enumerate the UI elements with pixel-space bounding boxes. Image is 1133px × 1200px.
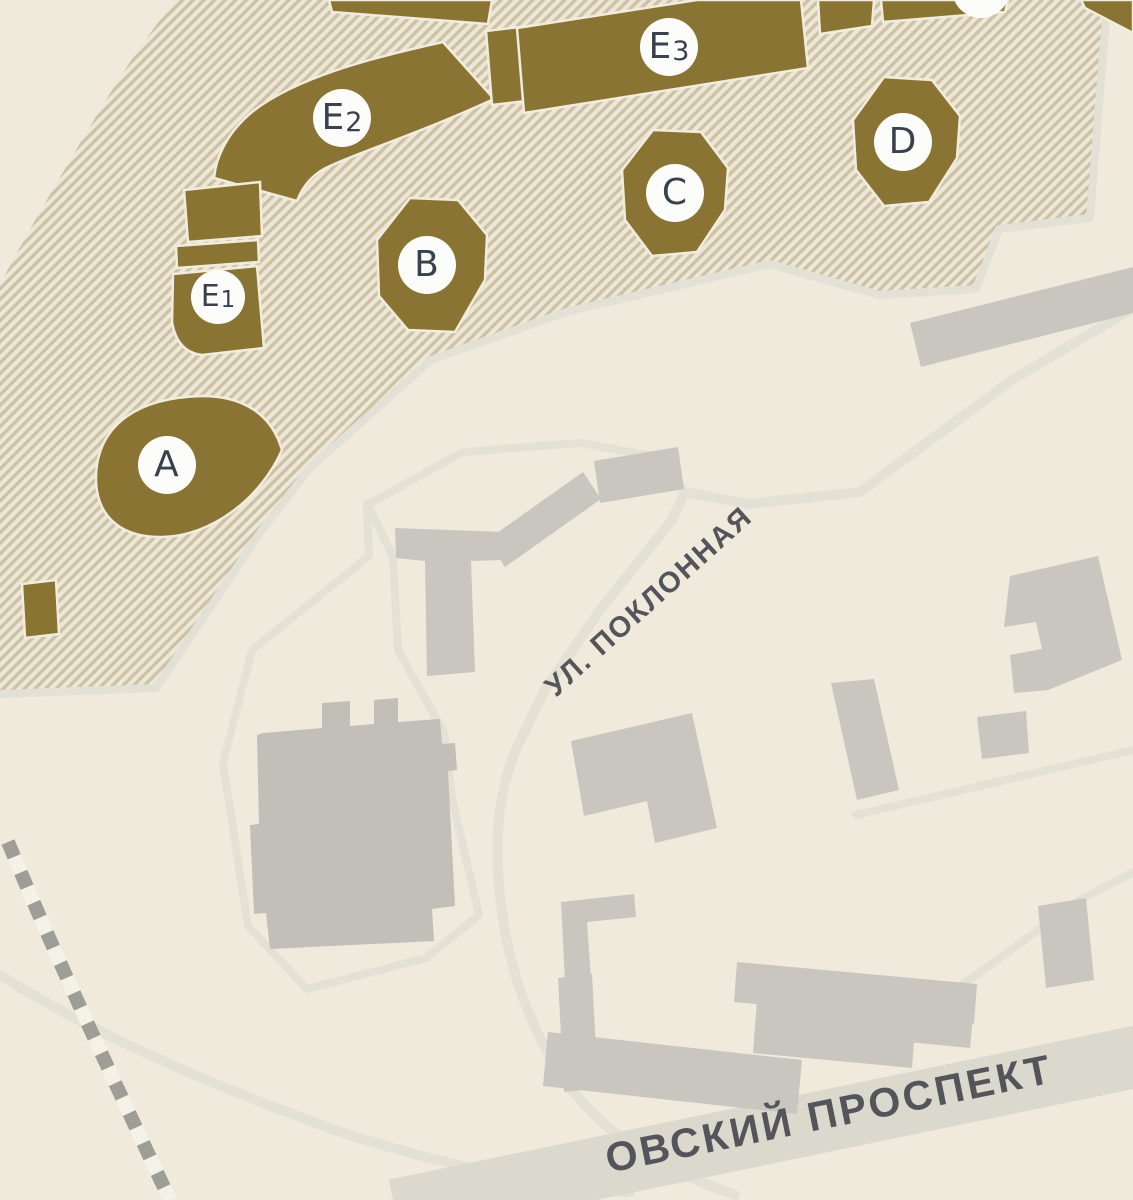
building-marker-e2-label: E <box>322 100 345 136</box>
map-canvas <box>0 0 1133 1200</box>
building-e1-upper <box>184 182 262 242</box>
building-marker-d[interactable]: D <box>874 113 932 171</box>
building-marker-e3-sub: 3 <box>672 30 689 65</box>
building-marker-e1-label: E <box>201 282 220 312</box>
building-marker-e2[interactable]: E2 <box>313 89 371 147</box>
context-building-south-block <box>908 988 975 1048</box>
building-marker-c-label: C <box>662 175 687 211</box>
building-marker-d-label: D <box>889 124 917 160</box>
context-building-east-small <box>977 711 1029 759</box>
building-marker-a-label: A <box>154 447 179 483</box>
building-e1-mid <box>176 240 259 268</box>
building-marker-b[interactable]: B <box>398 236 456 294</box>
context-building-southeast-bar <box>1038 898 1094 988</box>
building-marker-e1[interactable]: E1 <box>191 270 245 324</box>
building-small-rect <box>22 580 59 638</box>
building-marker-b-label: B <box>414 247 439 283</box>
building-marker-c[interactable]: C <box>646 164 704 222</box>
building-marker-e3[interactable]: E3 <box>640 18 698 76</box>
building-marker-e2-sub: 2 <box>345 101 362 136</box>
building-marker-e1-sub: 1 <box>221 282 236 312</box>
context-building-center-large <box>250 698 457 949</box>
site-plan-map: A B C D E1 E2 E3 УЛ. ПОКЛОННАЯ ОВСКИЙ ПР… <box>0 0 1133 1200</box>
building-marker-a[interactable]: A <box>138 436 196 494</box>
building-marker-e3-label: E <box>649 29 672 65</box>
